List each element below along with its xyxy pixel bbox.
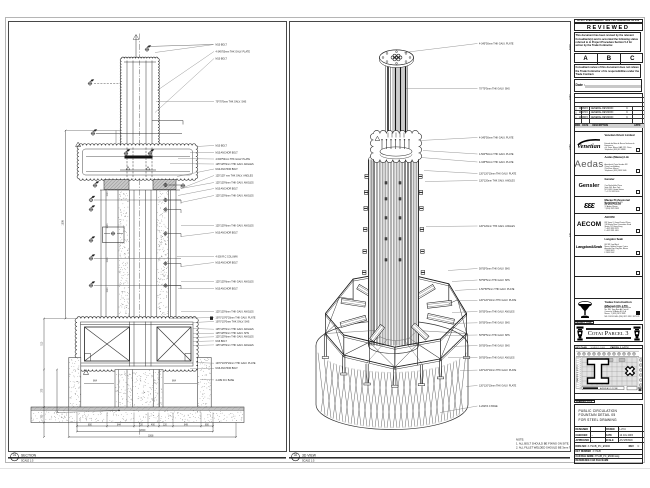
svg-text:3D VIEW: 3D VIEW [302,454,317,458]
svg-text:50*50*5mm THK GALV. SHS: 50*50*5mm THK GALV. SHS [479,321,510,324]
svg-text:125*125*6mm THK GALV. ANGLES: 125*125*6mm THK GALV. ANGLES [216,194,254,197]
svg-text:SCALE 1:5: SCALE 1:5 [21,460,34,463]
svg-text:120*120*10mm THK GALV. PLATE: 120*120*10mm THK GALV. PLATE [479,172,517,175]
svg-text:4-50*50*5mm THK GALV. PLATE: 4-50*50*5mm THK GALV. PLATE [479,288,515,291]
svg-text:1500: 1500 [107,256,109,262]
svg-text:1500: 1500 [107,190,109,196]
svg-text:M16 ANCHOR BOLT: M16 ANCHOR BOLT [216,367,239,370]
svg-text:2840: 2840 [140,428,146,431]
svg-text:SECTION: SECTION [21,454,37,458]
svg-text:M10 ANCHOR BOLT: M10 ANCHOR BOLT [216,287,239,290]
svg-text:125*125*6mm THK GALV. ANGLES: 125*125*6mm THK GALV. ANGLES [216,343,254,346]
svg-text:M10 BOLT: M10 BOLT [216,144,228,147]
svg-text:125*125*6mm THK GALV. ANGLES: 125*125*6mm THK GALV. ANGLES [216,310,254,313]
svg-text:510: 510 [42,340,44,345]
svg-text:864: 864 [172,379,177,382]
svg-text:1070*1070mm THK GALV. SHS: 1070*1070mm THK GALV. SHS [216,320,250,323]
svg-text:02: 02 [294,453,298,457]
svg-text:SCALE 1:5: SCALE 1:5 [302,460,315,463]
svg-text:4-500*50mm THK GALV. PLATE: 4-500*50mm THK GALV. PLATE [216,157,251,160]
svg-text:375: 375 [42,387,44,392]
svg-text:120*120*10mm THK GALV. PLATE: 120*120*10mm THK GALV. PLATE [479,384,517,387]
svg-text:125*125*6mm THK GALV. ANGLES: 125*125*6mm THK GALV. ANGLES [216,162,254,165]
svg-text:50*50*5mm THK GALV. ANGLES: 50*50*5mm THK GALV. ANGLES [479,310,515,313]
svg-text:M10 ANCHOR BOLT: M10 ANCHOR BOLT [216,231,239,234]
svg-text:120*120*10mm THK GALV. PLATE: 120*120*10mm THK GALV. PLATE [479,369,517,372]
svg-text:864: 864 [93,379,98,382]
svg-text:NOTE:: NOTE: [516,437,524,441]
svg-text:M10 BOLT: M10 BOLT [216,43,228,46]
svg-text:125*125*6mm THK GALV. ANGLES: 125*125*6mm THK GALV. ANGLES [216,335,254,338]
svg-text:1508: 1508 [62,219,65,225]
svg-text:PARCEL 1, LOT 1: PARCEL 1, LOT 1 [576,365,579,383]
svg-text:M16 BOLT: M16 BOLT [216,339,228,342]
svg-text:50*50*5mm THK GALV. SHS: 50*50*5mm THK GALV. SHS [479,278,510,281]
svg-text:125*125*6mm THK GALV. ANGLES: 125*125*6mm THK GALV. ANGLES [216,224,254,227]
svg-text:120*120*10mm THK GALV. PLATE: 120*120*10mm THK GALV. PLATE [479,299,517,302]
svg-text:3268: 3268 [148,434,154,437]
svg-text:4-345*50mm THK GALV. PLATE: 4-345*50mm THK GALV. PLATE [479,136,514,139]
svg-text:50*50*5mm THK GALV. SHS: 50*50*5mm THK GALV. SHS [479,267,510,270]
svg-text:M10 ANCHOR BOLT: M10 ANCHOR BOLT [216,187,239,190]
svg-text:125*125*6mm THK GALV. SHS: 125*125*6mm THK GALV. SHS [216,332,250,335]
svg-text:4-20M R.C BASE: 4-20M R.C BASE [216,378,235,381]
svg-text:AVENIDA DO COTAI: AVENIDA DO COTAI [599,387,617,390]
svg-text:2. ALL FILLET WELDED SHOULD BE: 2. ALL FILLET WELDED SHOULD BE 3mm THK. [516,445,570,449]
svg-text:1070*1070*20mm THK GALV. PLATE: 1070*1070*20mm THK GALV. PLATE [216,362,256,365]
svg-text:70*70*5mm THK GALV. SHS: 70*70*5mm THK GALV. SHS [479,87,510,90]
svg-text:01: 01 [13,453,17,457]
svg-text:1070*1070*20mm THK GALV. PLATE: 1070*1070*20mm THK GALV. PLATE [216,316,256,319]
svg-text:M10 BOLT: M10 BOLT [216,57,228,60]
svg-text:1. ALL BOLT SHOULD BE FIXING O: 1. ALL BOLT SHOULD BE FIXING ON SITE. [516,441,570,445]
svg-text:M10 ANCHOR BOLT: M10 ANCHOR BOLT [216,151,239,154]
svg-text:120*120mm THK GALV. ANGLES: 120*120mm THK GALV. ANGLES [479,179,515,182]
svg-text:125*125* mm THK GALV. ANGLES: 125*125* mm THK GALV. ANGLES [216,174,254,177]
svg-text:4-345*50mm THK GALV. PLATE: 4-345*50mm THK GALV. PLATE [216,50,251,53]
svg-text:M10 ANCHOR BOLT: M10 ANCHOR BOLT [216,167,239,170]
svg-text:1500: 1500 [107,222,109,228]
svg-text:4-500*50mm THK GALV. PLATE: 4-500*50mm THK GALV. PLATE [479,152,514,155]
svg-text:4-20M R.C BASE: 4-20M R.C BASE [479,404,498,407]
svg-text:70*70*5mm THK GALV. SHS: 70*70*5mm THK GALV. SHS [216,100,247,103]
svg-text:1500: 1500 [107,286,109,292]
svg-text:50*50*5mm THK GALV. SHS: 50*50*5mm THK GALV. SHS [479,333,510,336]
svg-text:50*50*5mm THK GALV. ANGLES: 50*50*5mm THK GALV. ANGLES [479,356,515,359]
svg-text:4-300 R.C COLUMN: 4-300 R.C COLUMN [216,255,238,258]
svg-text:4-345*50mm THK GALV. PLATE: 4-345*50mm THK GALV. PLATE [479,42,514,45]
svg-text:M10 ANCHOR BOLT: M10 ANCHOR BOLT [216,261,239,264]
svg-text:50*50*5mm THK GALV. SHS: 50*50*5mm THK GALV. SHS [479,344,510,347]
svg-text:120*120mm THK GALV. ANGLES: 120*120mm THK GALV. ANGLES [479,224,515,227]
svg-text:4-345*50mm THK GALV. PLATE: 4-345*50mm THK GALV. PLATE [479,160,514,163]
svg-text:125*125*6mm THK GALV. ANGLES: 125*125*6mm THK GALV. ANGLES [216,280,254,283]
svg-text:Venetian: Venetian [577,143,601,150]
svg-text:125*125*6mm THK GALV. ANGLES: 125*125*6mm THK GALV. ANGLES [216,328,254,331]
svg-text:125*125*6mm THK GALV. ANGLES: 125*125*6mm THK GALV. ANGLES [216,181,254,184]
